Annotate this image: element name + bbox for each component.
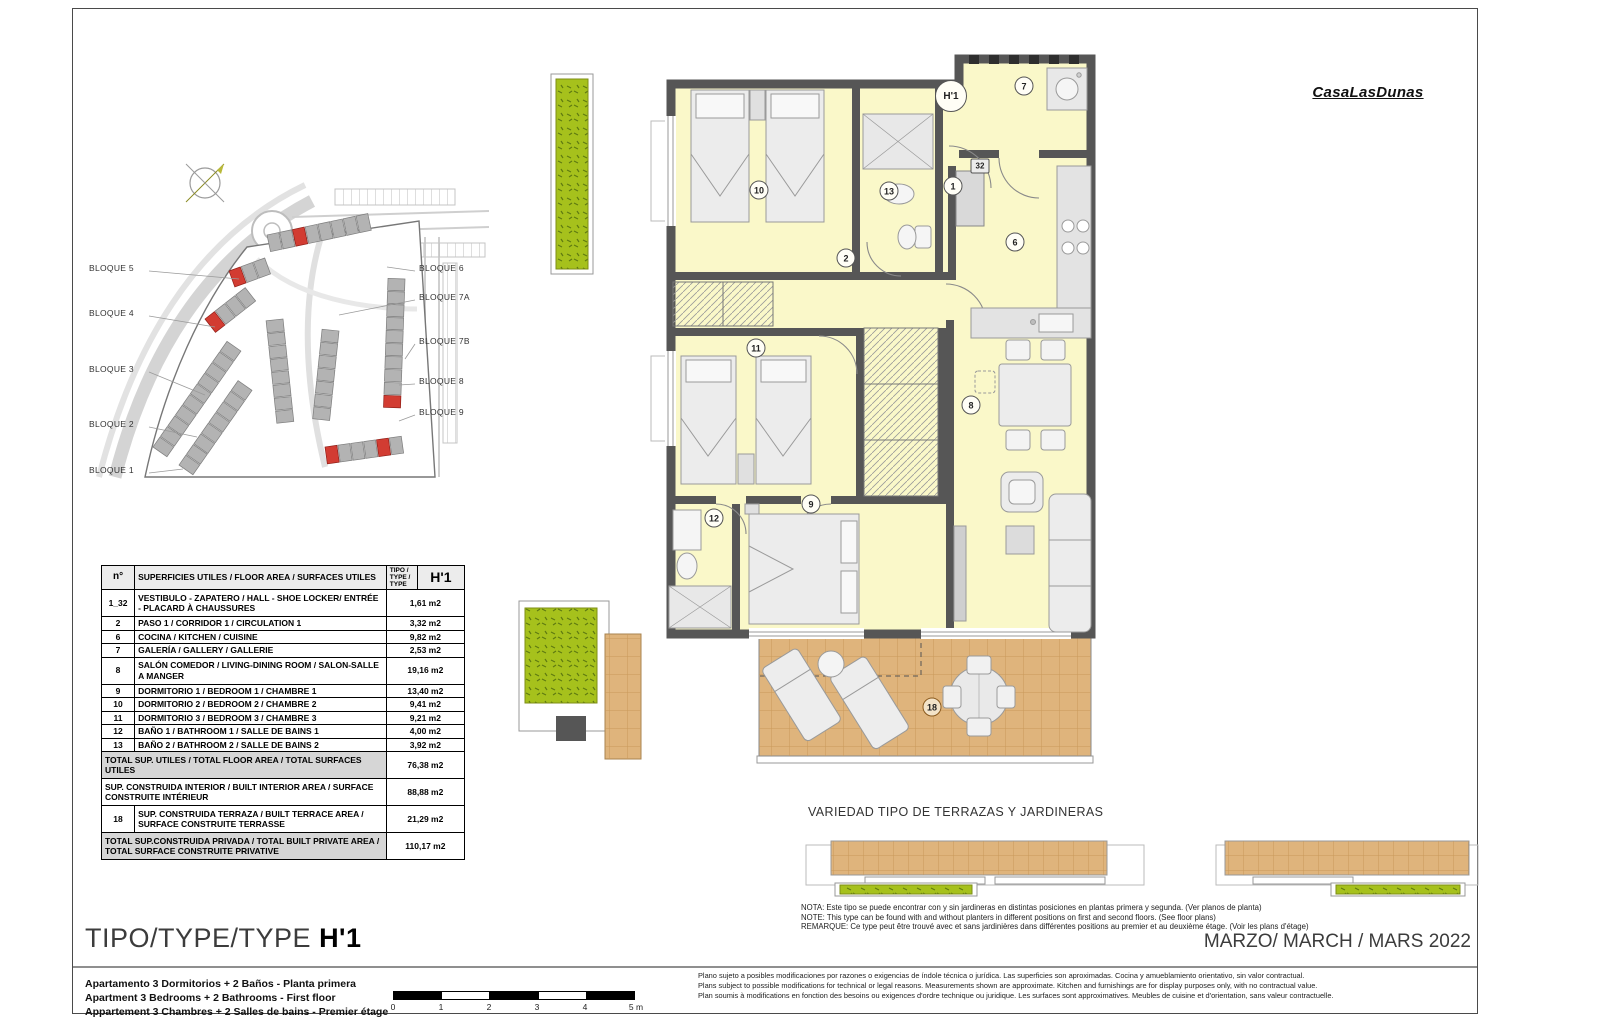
table-row: 1_32VESTIBULO - ZAPATERO / HALL - SHOE L… xyxy=(102,590,465,617)
room-label-11: 11 xyxy=(747,339,766,358)
disclaimer-fr: Plan soumis à modifications en fonction … xyxy=(698,991,1480,1001)
site-plan-label-bloque-9: BLOQUE 9 xyxy=(419,407,464,417)
type-label: TIPO/TYPE/TYPE xyxy=(85,923,311,953)
site-plan-label-bloque-2: BLOQUE 2 xyxy=(89,419,134,429)
col-value: H'1 xyxy=(417,566,464,590)
disclaimer-en: Plans subject to possible modifications … xyxy=(698,981,1480,991)
site-plan-label-bloque-8: BLOQUE 8 xyxy=(419,376,464,386)
table-row: 11DORMITORIO 3 / BEDROOM 3 / CHAMBRE 39,… xyxy=(102,711,465,725)
sheet-type-title: TIPO/TYPE/TYPE H'1 xyxy=(85,923,362,954)
floor-plan-drawing xyxy=(501,26,1106,774)
terrace-variants: VARIEDAD TIPO DE TERRAZAS Y JARDINERAS xyxy=(733,797,1481,933)
site-plan-label-bloque-1: BLOQUE 1 xyxy=(89,465,134,475)
sheet: CasaLasDunas xyxy=(0,0,1600,1024)
terrace-note-en: NOTE: This type can be found with and wi… xyxy=(801,913,1309,923)
scale-tick-3: 3 xyxy=(535,1002,540,1012)
scale-tick-0: 0 xyxy=(391,1002,396,1012)
site-plan-drawing xyxy=(87,159,489,481)
apartment-description: Apartamento 3 Dormitorios + 2 Baños - Pl… xyxy=(85,977,388,1019)
room-label-2: 2 xyxy=(837,249,856,268)
disclaimer-es: Plano sujeto a posibles modificaciones p… xyxy=(698,971,1480,981)
table-row: 6COCINA / KITCHEN / CUISINE9,82 m2 xyxy=(102,630,465,644)
table-row: 13BAÑO 2 / BATHROOM 2 / SALLE DE BAINS 2… xyxy=(102,738,465,752)
terrace-variant-b xyxy=(1213,825,1481,897)
scale-tick-4: 4 xyxy=(583,1002,588,1012)
scale-bar: 0 1 2 3 4 5 m xyxy=(393,989,653,1015)
site-plan-label-bloque-7b: BLOQUE 7B xyxy=(419,336,470,346)
areas-table: n° SUPERFICIES UTILES / FLOOR AREA / SUR… xyxy=(101,565,465,860)
room-label-18: 18 xyxy=(923,698,942,717)
site-plan-label-bloque-6: BLOQUE 6 xyxy=(419,263,464,273)
col-desc: SUPERFICIES UTILES / FLOOR AREA / SURFAC… xyxy=(135,566,387,590)
drawing-frame: CasaLasDunas xyxy=(72,8,1478,1014)
table-row: 12BAÑO 1 / BATHROOM 1 / SALLE DE BAINS 1… xyxy=(102,725,465,739)
site-plan-label-bloque-7a: BLOQUE 7A xyxy=(419,292,470,302)
table-summary-row: 18SUP. CONSTRUIDA TERRAZA / BUILT TERRAC… xyxy=(102,806,465,833)
scale-bar-strip xyxy=(393,991,635,1000)
table-row: 8SALÓN COMEDOR / LIVING-DINING ROOM / SA… xyxy=(102,657,465,684)
room-label-32: 32 xyxy=(971,159,990,174)
site-plan: BLOQUE 5 BLOQUE 4 BLOQUE 3 BLOQUE 2 BLOQ… xyxy=(87,159,489,481)
terrace-variants-title: VARIEDAD TIPO DE TERRAZAS Y JARDINERAS xyxy=(808,805,1103,819)
table-row: 9DORMITORIO 1 / BEDROOM 1 / CHAMBRE 113,… xyxy=(102,684,465,698)
site-plan-label-bloque-5: BLOQUE 5 xyxy=(89,263,134,273)
table-row: 2PASO 1 / CORRIDOR 1 / CIRCULATION 13,32… xyxy=(102,617,465,631)
room-label-1: 1 xyxy=(944,177,963,196)
room-label-6: 6 xyxy=(1006,233,1025,252)
table-row: 10DORMITORIO 2 / BEDROOM 2 / CHAMBRE 29,… xyxy=(102,698,465,712)
compass-icon xyxy=(186,164,224,202)
table-row: 7GALERÍA / GALLERY / GALLERIE2,53 m2 xyxy=(102,644,465,658)
scale-tick-5: 5 m xyxy=(629,1002,643,1012)
terrace-variant-a xyxy=(803,825,1148,897)
scale-tick-1: 1 xyxy=(439,1002,444,1012)
title-block-divider xyxy=(73,966,1477,968)
description-en: Apartment 3 Bedrooms + 2 Bathrooms - Fir… xyxy=(85,991,388,1005)
table-summary-row: TOTAL SUP.CONSTRUIDA PRIVADA / TOTAL BUI… xyxy=(102,833,465,860)
table-summary-row: SUP. CONSTRUIDA INTERIOR / BUILT INTERIO… xyxy=(102,779,465,806)
table-summary-row: TOTAL SUP. UTILES / TOTAL FLOOR AREA / T… xyxy=(102,752,465,779)
terrace-note-es: NOTA: Este tipo se puede encontrar con y… xyxy=(801,903,1309,913)
room-label-7: 7 xyxy=(1015,77,1034,96)
type-value: H'1 xyxy=(319,923,361,953)
plan-type-badge: H'1 xyxy=(935,80,967,112)
room-label-8: 8 xyxy=(962,396,981,415)
areas-table-header: n° SUPERFICIES UTILES / FLOOR AREA / SUR… xyxy=(102,566,465,590)
site-plan-label-bloque-3: BLOQUE 3 xyxy=(89,364,134,374)
col-no: n° xyxy=(102,566,135,590)
legal-disclaimer: Plano sujeto a posibles modificaciones p… xyxy=(698,971,1480,1001)
description-es: Apartamento 3 Dormitorios + 2 Baños - Pl… xyxy=(85,977,388,991)
site-plan-label-bloque-4: BLOQUE 4 xyxy=(89,308,134,318)
room-label-9: 9 xyxy=(802,495,821,514)
description-fr: Appartement 3 Chambres + 2 Salles de bai… xyxy=(85,1005,388,1019)
floor-plan: H'1 10 13 7 1 32 2 6 11 8 9 12 18 xyxy=(501,26,1106,774)
col-type: TIPO / TYPE / TYPE xyxy=(386,566,417,590)
room-label-10: 10 xyxy=(750,181,769,200)
sheet-date: MARZO/ MARCH / MARS 2022 xyxy=(1153,931,1471,953)
room-label-13: 13 xyxy=(880,182,899,201)
terrace-notes: NOTA: Este tipo se puede encontrar con y… xyxy=(801,903,1309,932)
scale-tick-2: 2 xyxy=(487,1002,492,1012)
room-label-12: 12 xyxy=(705,509,724,528)
brand-logo: CasaLasDunas xyxy=(1278,84,1458,101)
